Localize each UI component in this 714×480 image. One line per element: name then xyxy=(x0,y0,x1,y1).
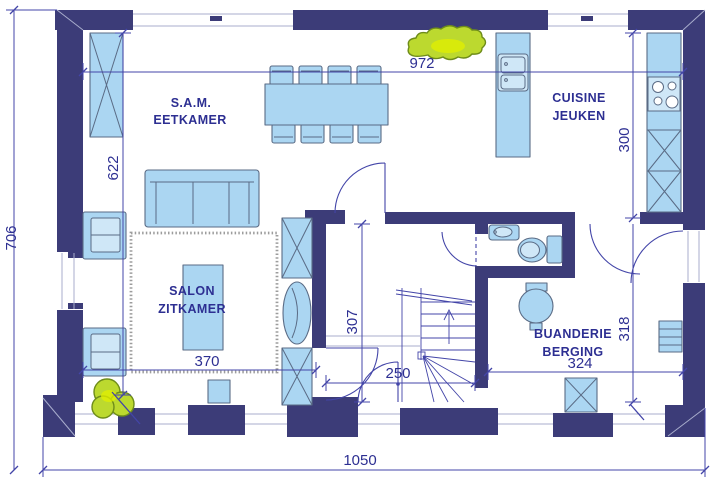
hall-wall-cabinet-top xyxy=(282,218,312,278)
armchair-1 xyxy=(83,212,126,259)
entry-radiator xyxy=(659,321,682,352)
dim-total-depth: 706 xyxy=(3,225,20,250)
dim-hall-width: 250 xyxy=(385,365,410,382)
toilet xyxy=(518,236,562,263)
wc-sink xyxy=(489,225,519,240)
hall-wall-plant-stand xyxy=(283,282,311,344)
room-label-dining-line1: S.A.M. xyxy=(171,96,212,110)
dim-entry-depth: 318 xyxy=(616,316,633,341)
stairs xyxy=(396,288,475,402)
radiator-left xyxy=(90,33,123,137)
room-label-kitchen-line1: CUISINE xyxy=(552,91,606,105)
sofa xyxy=(145,170,259,227)
floor-plan-svg: S.A.M. EETKAMER CUISINE JEUKEN SALON ZIT… xyxy=(0,0,714,480)
window-pane-bottom-left xyxy=(208,380,230,403)
dining-table xyxy=(265,66,388,143)
dim-hall-depth: 307 xyxy=(344,309,361,334)
kitchen-counter-right xyxy=(647,33,681,212)
dim-dining-depth: 622 xyxy=(105,155,122,180)
room-label-laundry-line1: BUANDERIE xyxy=(534,327,612,341)
room-label-dining-line2: EETKAMER xyxy=(153,113,226,127)
front-door xyxy=(631,231,683,283)
door-wc xyxy=(442,230,476,266)
stairs-up-arrow xyxy=(444,310,454,344)
dim-total-width: 1050 xyxy=(343,452,376,469)
dim-kitchen-depth: 300 xyxy=(616,127,633,152)
floor-plan-page: S.A.M. EETKAMER CUISINE JEUKEN SALON ZIT… xyxy=(0,0,714,480)
room-label-living-line1: SALON xyxy=(169,284,215,298)
armchair-2 xyxy=(83,328,126,376)
dim-laundry-width: 324 xyxy=(567,355,592,372)
window-pane-laundry xyxy=(565,378,597,412)
door-dining-hall xyxy=(335,163,385,213)
dim-interior-width-top: 972 xyxy=(409,55,434,72)
room-label-kitchen-line2: JEUKEN xyxy=(552,109,605,123)
hall-wall-cabinet-bottom xyxy=(282,348,312,405)
room-label-living-line2: ZITKAMER xyxy=(158,302,226,316)
dim-living-width: 370 xyxy=(194,353,219,370)
kitchen-island xyxy=(496,33,530,157)
water-heater xyxy=(519,283,553,330)
